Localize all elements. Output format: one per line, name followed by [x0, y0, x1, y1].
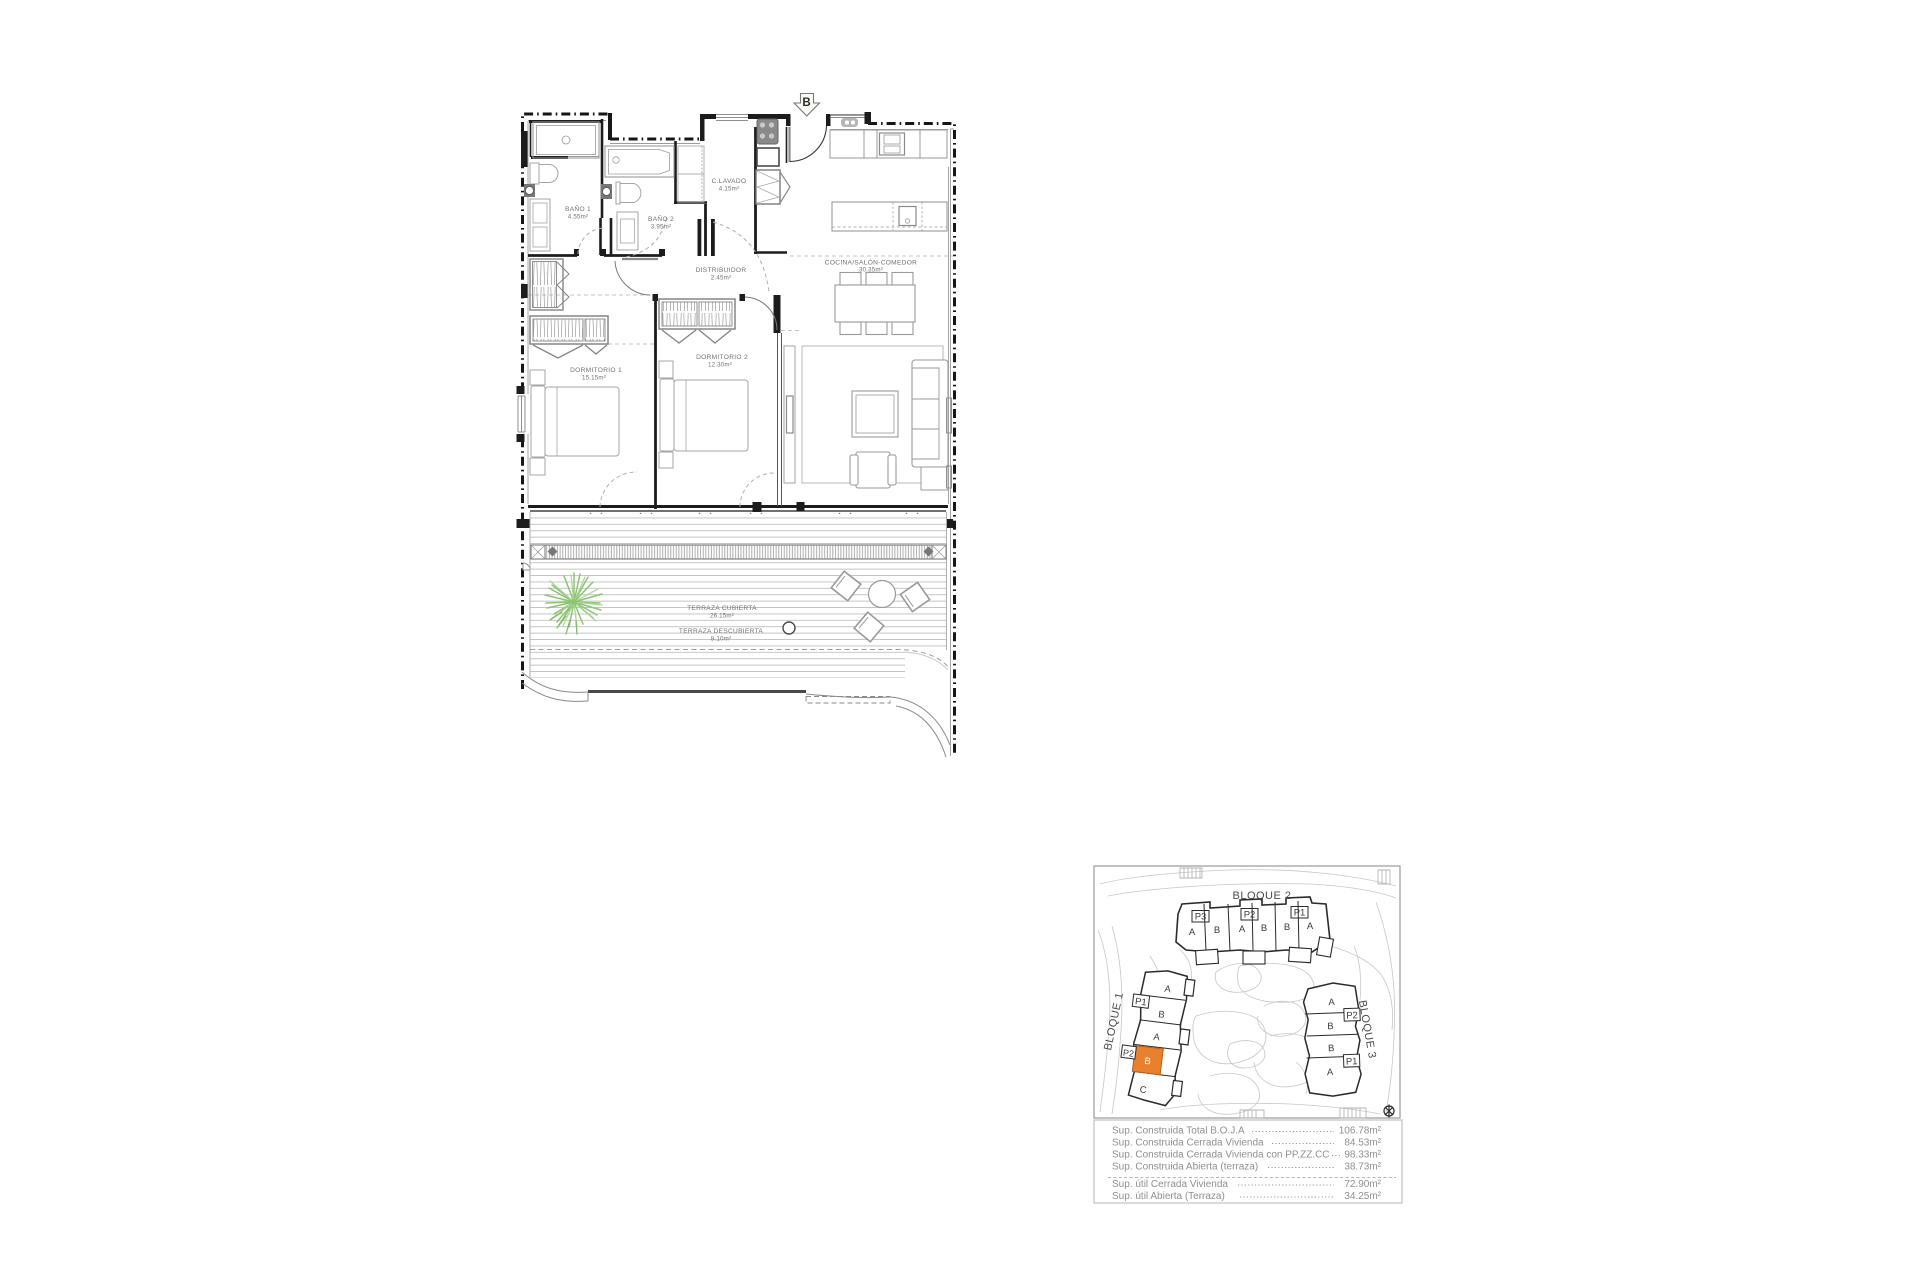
svg-text:A: A: [1307, 921, 1314, 932]
svg-text:Sup. Construida Abierta (terra: Sup. Construida Abierta (terraza): [1112, 1162, 1258, 1173]
svg-text:BAÑO 1: BAÑO 1: [565, 204, 591, 213]
svg-text:4.15m²: 4.15m²: [719, 186, 739, 193]
svg-text:A: A: [1239, 924, 1246, 935]
svg-text:34.25m²: 34.25m²: [1344, 1191, 1381, 1202]
svg-text:8.10m²: 8.10m²: [711, 636, 731, 643]
svg-text:DORMITORIO 2: DORMITORIO 2: [696, 354, 748, 361]
svg-text:A: A: [1327, 1067, 1334, 1078]
svg-text:B: B: [1327, 1021, 1334, 1032]
svg-text:26.15m²: 26.15m²: [710, 613, 734, 620]
svg-text:COCINA/SALÓN-COMEDOR: COCINA/SALÓN-COMEDOR: [825, 258, 917, 267]
svg-text:4.55m²: 4.55m²: [568, 214, 588, 221]
svg-text:P2: P2: [1346, 1010, 1358, 1021]
svg-text:B: B: [1328, 1043, 1335, 1054]
svg-text:B: B: [1214, 925, 1220, 936]
svg-text:P1: P1: [1346, 1056, 1358, 1067]
svg-text:3.95m²: 3.95m²: [651, 224, 671, 231]
svg-text:Sup. Construida Total B.O.J.A: Sup. Construida Total B.O.J.A: [1112, 1126, 1245, 1137]
svg-text:72.90m²: 72.90m²: [1344, 1179, 1381, 1190]
svg-text:12.30m²: 12.30m²: [708, 362, 732, 369]
svg-text:Sup. Construida Cerrada Vivien: Sup. Construida Cerrada Vivienda: [1112, 1138, 1264, 1149]
svg-text:30.35m²: 30.35m²: [859, 267, 883, 274]
svg-text:P1: P1: [1134, 996, 1147, 1008]
svg-text:BAÑO 2: BAÑO 2: [648, 214, 674, 223]
svg-text:15.15m²: 15.15m²: [582, 375, 606, 382]
svg-text:B: B: [1158, 1009, 1166, 1021]
svg-text:BLOQUE 2: BLOQUE 2: [1232, 890, 1291, 902]
svg-text:B: B: [1261, 923, 1267, 934]
svg-text:P2: P2: [1244, 910, 1256, 921]
svg-text:B: B: [1284, 922, 1290, 933]
svg-text:C.LAVADO: C.LAVADO: [712, 178, 747, 185]
svg-text:A: A: [1328, 997, 1335, 1008]
svg-text:Sup. útil Abierta (Terraza): Sup. útil Abierta (Terraza): [1112, 1191, 1225, 1202]
svg-text:TERRAZA DESCUBIERTA: TERRAZA DESCUBIERTA: [679, 628, 764, 635]
svg-text:A: A: [1189, 927, 1196, 938]
svg-text:TERRAZA CUBIERTA: TERRAZA CUBIERTA: [687, 605, 757, 612]
svg-text:38.73m²: 38.73m²: [1344, 1162, 1381, 1173]
svg-text:98.33m²: 98.33m²: [1344, 1150, 1381, 1161]
svg-text:B: B: [1144, 1056, 1152, 1068]
svg-text:P1: P1: [1294, 908, 1306, 919]
svg-text:Sup. útil Cerrada Vivienda: Sup. útil Cerrada Vivienda: [1112, 1179, 1228, 1190]
svg-text:106.78m²: 106.78m²: [1339, 1126, 1382, 1137]
svg-text:84.53m²: 84.53m²: [1344, 1138, 1381, 1149]
svg-text:P2: P2: [1122, 1048, 1134, 1059]
svg-text:DORMITORIO 1: DORMITORIO 1: [570, 367, 622, 374]
svg-text:P3: P3: [1195, 912, 1207, 923]
svg-text:2.45m²: 2.45m²: [711, 275, 731, 282]
svg-text:Sup. Construida Cerrada Vivien: Sup. Construida Cerrada Vivienda con PP.…: [1112, 1150, 1330, 1161]
svg-text:DISTRIBUIDOR: DISTRIBUIDOR: [696, 267, 747, 274]
svg-text:B: B: [802, 97, 810, 109]
